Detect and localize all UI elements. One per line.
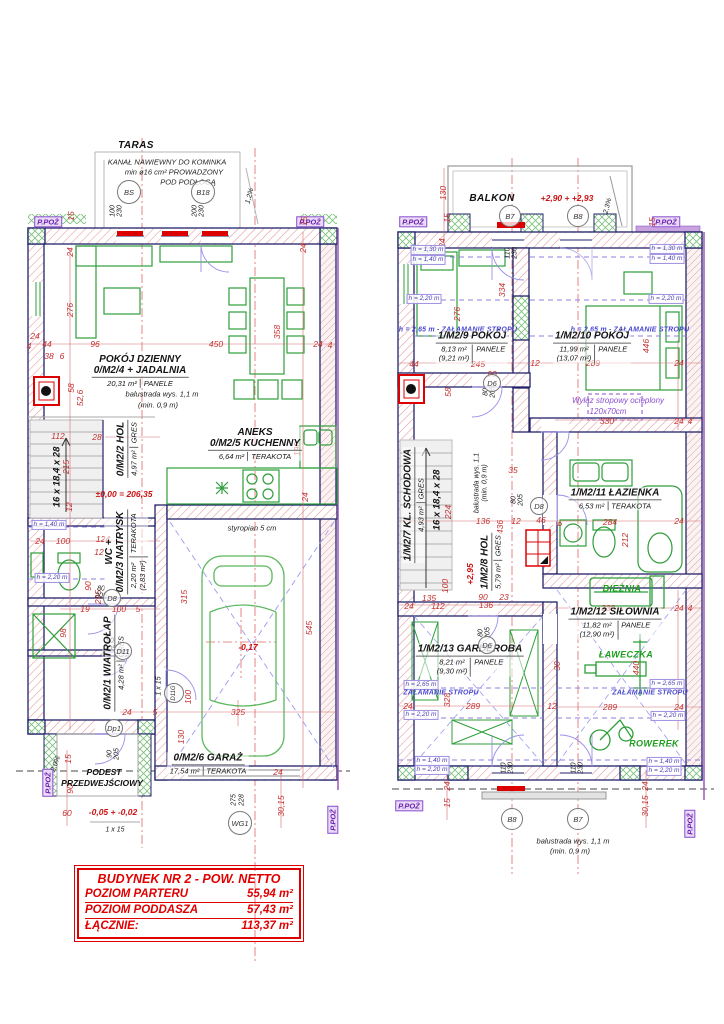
dimension-label: 130: [177, 730, 186, 744]
room-label: 1/M2/11 ŁAZIENKA6,53 m²TERAKOTA: [569, 487, 662, 510]
room-name: POKÓJ DZIENNY: [99, 354, 181, 365]
dimension-label: 5: [153, 708, 158, 717]
dimension-label: 24: [273, 768, 282, 777]
size-label: 110: [571, 762, 578, 773]
height-note: h = 2,20 m: [415, 765, 450, 775]
dimension-label: 15: [443, 798, 452, 807]
room-finish: TERAKOTA: [203, 766, 249, 775]
summary-header: BUDYNEK NR 2 - POW. NETTO: [85, 872, 293, 887]
room-area-gross: (2,83 m²): [139, 560, 148, 590]
room-label: ANEKS0/M2/5 KUCHENNY6,64 m²TERAKOTA: [208, 427, 302, 461]
hatch-note: Wyłaz stropowy ocieplony: [572, 397, 664, 405]
room-area: 6,53 m²: [579, 501, 604, 510]
summary-table-inner: BUDYNEK NR 2 - POW. NETTO POZIOM PARTERU…: [77, 868, 301, 939]
dimension-label: 4: [328, 341, 333, 350]
size-label: balustrada wys. 1,1: [474, 453, 481, 513]
room-id: 1/M2/7 KL. SCHODOWA: [402, 449, 413, 561]
dimension-label: 12: [65, 502, 74, 511]
height-note: h = 1,40 m: [650, 254, 685, 264]
area-title: TARAS: [118, 141, 154, 151]
room-label: POKÓJ DZIENNY0/M2/4 + JADALNIA20,31 m²PA…: [92, 354, 189, 388]
size-label: 230: [199, 205, 206, 217]
room-id: 1/M2/10 POKÓJ: [555, 331, 629, 342]
dimension-label: 15: [300, 216, 309, 225]
area-title: PRZEDWEJŚCIOWY: [61, 779, 143, 788]
dimension-label: 15: [648, 217, 657, 226]
room-label: 1/M2/12 SIŁOWNIA11,82 m²(12,90 m²)PANELE: [569, 607, 662, 640]
height-note: h = 2,20 m: [647, 766, 682, 776]
size-label: 1 x 15: [105, 827, 124, 834]
room-area-gross: (9,30 m²): [437, 667, 467, 676]
room-label: 1/M2/13 GARDEROBA8,21 m²(9,30 m²)PANELE: [416, 644, 524, 677]
dimension-label: 24: [404, 602, 413, 611]
dimension-label: 15: [67, 211, 76, 220]
size-label: 100: [110, 205, 117, 217]
room-finish: TERAKOTA: [129, 510, 138, 556]
room-finish: GRES: [416, 475, 425, 502]
room-finish: GRES: [493, 532, 502, 559]
room-id: 1/M2/9 POKÓJ: [438, 331, 506, 342]
height-note: h = 1,30 m: [650, 244, 685, 254]
marker-d8-circle: D8: [530, 497, 548, 515]
dimension-label: 224: [444, 505, 453, 519]
fire-protection-label: P.POŻ: [395, 800, 423, 811]
dimension-label: 276: [66, 303, 75, 317]
dimension-label: 100: [56, 537, 70, 546]
height-note: h = 2,65 m: [650, 679, 685, 689]
summary-value: 113,37 m²: [241, 919, 293, 934]
marker-wg1-circle: WG1: [228, 811, 252, 835]
equipment-label: BIEŻNIA: [603, 585, 642, 594]
dimension-label: 289: [603, 703, 617, 712]
room-area: 8,13 m²: [441, 345, 466, 354]
dimension-label: 100: [184, 690, 193, 704]
fire-protection-label: P.POŻ: [399, 216, 427, 227]
room-finish: PANELE: [471, 658, 506, 667]
dimension-label: 44: [409, 360, 418, 369]
dimension-label: 90: [84, 581, 93, 590]
room-area: 6,64 m²: [219, 452, 244, 461]
dimension-label: 6: [555, 522, 564, 527]
level-label: +2,90 + +2,93: [541, 194, 594, 203]
stair-spec-label: 16 x 18,4 x 28: [52, 447, 62, 508]
dimension-label: 24: [674, 517, 683, 526]
summary-label: POZIOM PARTERU: [85, 887, 188, 902]
dimension-label: 58: [444, 387, 453, 396]
note-label: (min. 0,9 m): [138, 401, 178, 409]
size-label: 230: [578, 762, 585, 774]
dimension-label: 112: [431, 602, 445, 611]
room-finish: PANELE: [473, 345, 508, 354]
height-note: h = 2,20 m: [407, 294, 442, 304]
room-id: 1/M2/13 GARDEROBA: [418, 644, 522, 655]
dimension-label: 46: [536, 516, 545, 525]
size-label: 90: [107, 750, 114, 758]
dimension-label: 130: [439, 186, 448, 200]
floor-plan-drawing: TARASKANAŁ NAWIEWNY DO KOMINKAmin ø16 cm…: [0, 0, 724, 1024]
size-label: 230: [512, 247, 519, 259]
room-area: 4,97 m²: [129, 450, 138, 475]
dimension-label: 24: [30, 332, 39, 341]
dimension-label: 334: [498, 283, 507, 297]
marker-d8-circle: D8: [103, 589, 121, 607]
room-name: ANEKS: [237, 427, 272, 438]
dimension-label: 315: [180, 590, 189, 604]
room-area-gross: (9,21 m²): [439, 354, 469, 363]
room-id: 0/M2/2 HOL: [115, 422, 126, 476]
dimension-label: 35: [508, 466, 517, 475]
room-finish: TERAKOTA: [248, 452, 294, 461]
size-label: 205: [114, 748, 121, 760]
size-label: (min. 0,9 m): [482, 464, 489, 501]
area-title: BALKON: [469, 194, 514, 204]
room-label: 1/M2/9 POKÓJ8,13 m²(9,21 m²)PANELE: [436, 331, 508, 364]
room-area: 2,20 m²: [129, 563, 138, 588]
dimension-label: 19: [80, 605, 89, 614]
room-label: 1/M2/8 HOL5,79 m²GRES: [479, 532, 502, 592]
dimension-label: 112: [51, 432, 65, 441]
dimension-label: 446: [642, 339, 651, 353]
dimension-label: 24: [674, 604, 683, 613]
room-id: 0/M2/4 + JADALNIA: [94, 365, 187, 376]
dimension-label: 12: [547, 702, 556, 711]
level-label: +2,95: [466, 563, 475, 585]
dimension-label: 284: [603, 518, 617, 527]
size-label: 230: [117, 205, 124, 217]
marker-d11-circle: D11: [114, 642, 132, 660]
room-name: WC +: [104, 539, 115, 564]
area-title: PODEST: [87, 768, 122, 777]
summary-row-poddasze: POZIOM PODDASZA 57,43 m²: [85, 903, 293, 919]
dimension-label: 24: [641, 781, 650, 790]
dimension-label: 30,15: [277, 795, 286, 816]
size-label: 228: [239, 794, 246, 806]
dimension-label: 330: [600, 417, 614, 426]
dimension-label: 24: [35, 537, 44, 546]
room-id: 1/M2/11 ŁAZIENKA: [571, 487, 660, 498]
dimension-label: 24: [443, 781, 452, 790]
dimension-label: 289: [466, 702, 480, 711]
room-label: 1/M2/7 KL. SCHODOWA4,93 m²GRES: [402, 447, 425, 563]
summary-row-parter: POZIOM PARTERU 55,94 m²: [85, 887, 293, 903]
summary-value: 57,43 m²: [247, 903, 293, 918]
dimension-label: 215: [62, 460, 71, 474]
dimension-label: 96: [90, 340, 99, 349]
note-label: styropian 5 cm: [228, 524, 277, 532]
room-finish: PANELE: [141, 379, 176, 388]
dimension-label: 23: [499, 593, 508, 602]
note-label: balustrada wys. 1,1 m: [537, 837, 610, 845]
marker-b18-circle: B18: [191, 180, 215, 204]
marker-bs-circle: BS: [117, 180, 141, 204]
room-label: 0/M2/2 HOL4,97 m²GRES: [115, 419, 138, 479]
height-note: h = 1,40 m: [32, 520, 67, 530]
dimension-label: 24: [301, 492, 310, 501]
size-label: 230: [508, 762, 515, 774]
marker-d6-circle: D6: [483, 374, 501, 392]
dimension-label: 328: [443, 693, 452, 707]
dimension-label: 44: [42, 340, 51, 349]
room-area-gross: (12,90 m²): [580, 630, 615, 639]
room-id: 0/M2/6 GARAŻ: [174, 752, 243, 763]
level-label: ±0,00 = 206,35: [96, 490, 153, 499]
size-label: 110: [505, 247, 512, 258]
dimension-label: 24: [674, 359, 683, 368]
note-label: KANAŁ NAWIEWNY DO KOMINKA: [108, 158, 227, 166]
room-area: 20,31 m²: [107, 379, 137, 388]
room-id: 0/M2/1 WIATROŁAP: [102, 616, 113, 709]
dimension-label: 30: [553, 661, 562, 670]
room-label: 0/M2/1 WIATROŁAP4,28 m²GRES: [102, 614, 125, 711]
dimension-label: 30,15: [641, 795, 650, 816]
dimension-label: 212: [621, 533, 630, 547]
room-finish: PANELE: [618, 621, 653, 630]
summary-row-total: ŁĄCZNIE: 113,37 m²: [85, 919, 293, 934]
level-label: -0,17: [238, 643, 257, 652]
room-finish: GRES: [129, 419, 138, 446]
level-label: -0,05 + -0,02: [89, 808, 137, 817]
summary-label: ŁĄCZNIE:: [85, 919, 139, 934]
equipment-label: ŁAWECZKA: [599, 651, 653, 660]
size-label: 1 x 15: [156, 676, 163, 695]
dimension-label: 136: [479, 601, 493, 610]
dimension-label: 24: [313, 340, 322, 349]
dimension-label: 450: [209, 340, 223, 349]
height-note: h = 2,20 m: [651, 711, 686, 721]
room-label: 1/M2/10 POKÓJ11,99 m²(13,07 m²)PANELE: [553, 331, 631, 364]
height-note: h = 2,20 m: [649, 294, 684, 304]
fire-protection-label: P.POŻ: [684, 810, 695, 838]
dimension-label: 4: [688, 417, 693, 426]
height-note: h = 1,40 m: [411, 255, 446, 265]
marker-d11g-circle: D11G: [164, 683, 184, 703]
room-area: 4,28 m²: [116, 664, 125, 689]
dimension-label: 100: [441, 579, 450, 593]
marker-dp1-circle: Dp1: [105, 719, 123, 737]
dimension-label: 136: [476, 517, 490, 526]
dimension-label: 4: [27, 342, 32, 351]
height-note: h = 2,20 m: [404, 710, 439, 720]
stair-spec-label: 16 x 18,4 x 28: [432, 470, 442, 531]
dimension-label: 52,6: [76, 390, 85, 407]
dimension-label: 60: [62, 809, 71, 818]
room-id: 1/M2/8 HOL: [479, 535, 490, 589]
dimension-label: 4: [688, 604, 693, 613]
size-label: 80: [511, 496, 518, 504]
marker-b8-circle: B8: [501, 808, 523, 830]
dimension-label: 24: [299, 243, 308, 252]
room-area: 5,79 m²: [493, 563, 502, 588]
dimension-label: 28: [92, 433, 101, 442]
room-label: 0/M2/6 GARAŻ17,54 m²TERAKOTA: [167, 752, 249, 775]
room-finish: PANELE: [595, 345, 630, 354]
size-label: 200: [192, 205, 199, 217]
dimension-label: 12: [511, 517, 520, 526]
room-id: 1/M2/12 SIŁOWNIA: [571, 607, 660, 618]
room-id: 0/M2/5 KUCHENNY: [210, 438, 300, 449]
room-finish: TERAKOTA: [608, 501, 654, 510]
ceiling-break-note: ZAŁAMANIE STROPU: [612, 690, 688, 697]
size-label: 275: [231, 794, 238, 806]
note-label: (min. 0,9 m): [550, 847, 590, 855]
note-label: balustrada wys. 1,1 m: [126, 390, 199, 398]
room-id: 0/M2/3 NATRYSK: [115, 512, 126, 593]
dimension-label: 545: [305, 621, 314, 635]
room-area: 11,99 m²: [559, 345, 588, 354]
room-area: 11,82 m²: [582, 621, 611, 630]
dimension-label: 15: [443, 213, 452, 222]
marker-b7-circle: B7: [567, 808, 589, 830]
dimension-label: 24: [66, 247, 75, 256]
room-label: WC +0/M2/3 NATRYSK2,20 m²(2,83 m²)TERAKO…: [104, 510, 148, 595]
dimension-label: 440: [632, 661, 641, 675]
height-note: h = 2,20 m: [35, 573, 70, 583]
summary-label: POZIOM PODDASZA: [85, 903, 198, 918]
summary-table: BUDYNEK NR 2 - POW. NETTO POZIOM PARTERU…: [74, 865, 304, 942]
fire-protection-label: P.POŻ: [34, 216, 62, 227]
height-note: h = 1,30 m: [411, 245, 446, 255]
dimension-label: 98: [59, 628, 68, 637]
dimension-label: 6: [60, 352, 65, 361]
size-label: 205: [518, 494, 525, 506]
dimension-label: 358: [273, 325, 282, 339]
room-area: 4,93 m²: [416, 506, 425, 531]
fire-protection-label: P.POŻ: [327, 806, 338, 834]
dimension-label: 12: [530, 359, 539, 368]
note-label: min ø16 cm² PROWADZONY: [125, 168, 223, 176]
room-area: 8,21 m²: [439, 658, 464, 667]
room-area: 17,54 m²: [170, 766, 200, 775]
dimension-label: 325: [231, 708, 245, 717]
fire-protection-label: P.POŻ: [42, 769, 53, 797]
dimension-label: 12: [94, 548, 103, 557]
dimension-label: 276: [453, 307, 462, 321]
marker-b8-circle: B8: [567, 205, 589, 227]
equipment-label: ROWEREK: [629, 740, 679, 749]
dimension-label: 38: [44, 352, 53, 361]
dimension-label: 5: [136, 605, 141, 614]
dimension-label: 24: [674, 417, 683, 426]
summary-value: 55,94 m²: [247, 887, 293, 902]
size-label: 110: [501, 762, 508, 773]
dimension-label: 15: [64, 754, 73, 763]
room-area-gross: (13,07 m²): [557, 354, 592, 363]
marker-d6-circle: D6: [478, 636, 496, 654]
marker-b7-circle: B7: [499, 205, 521, 227]
